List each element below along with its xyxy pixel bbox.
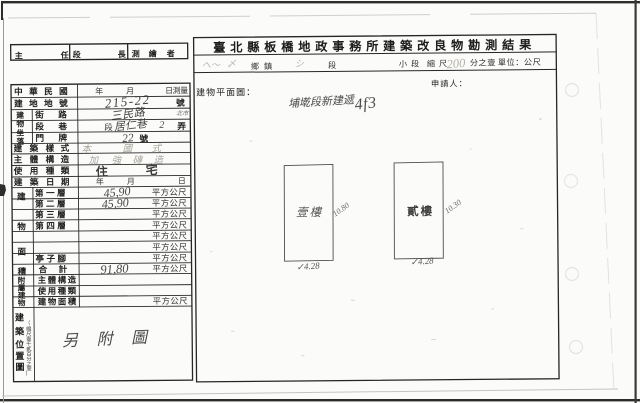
svg-text:第: 第 [35,198,44,209]
svg-text:段: 段 [104,122,113,132]
svg-text:牌: 牌 [58,132,67,143]
svg-text:使: 使 [37,286,47,296]
svg-text:號: 號 [176,97,185,108]
svg-text:✓4.28: ✓4.28 [296,260,321,272]
svg-text:號: 號 [59,97,68,108]
svg-text:種: 種 [46,165,55,176]
svg-text:樣: 樣 [45,142,54,153]
svg-text:段: 段 [35,121,44,132]
svg-text:圖: 圖 [15,362,24,372]
svg-text:體: 體 [30,153,39,164]
svg-text:層: 層 [57,187,66,198]
svg-text:日: 日 [46,177,55,187]
svg-text:主: 主 [15,50,23,60]
svg-text:建: 建 [15,110,24,120]
svg-text:置: 置 [15,351,24,361]
svg-text:築: 築 [14,326,25,337]
svg-text:二: 二 [46,199,55,209]
svg-text:物: 物 [17,221,26,232]
svg-text:者: 者 [166,48,175,58]
svg-text:民: 民 [44,86,53,96]
svg-text:號: 號 [139,132,148,143]
svg-text:式: 式 [60,142,69,153]
svg-text:第: 第 [35,187,44,198]
svg-text:任: 任 [60,50,69,60]
svg-text:宅: 宅 [145,162,158,177]
svg-text:造: 造 [68,275,77,285]
svg-text:面: 面 [58,297,67,307]
svg-text:種: 種 [58,286,67,296]
svg-text:年: 年 [96,176,104,186]
svg-text:國: 國 [123,144,134,155]
svg-text:平方公尺: 平方公尺 [152,242,187,252]
svg-text:國: 國 [59,86,68,96]
svg-text:2: 2 [159,120,164,131]
svg-text:合: 合 [39,263,48,274]
svg-text:段: 段 [73,49,81,59]
svg-text:體: 體 [48,275,57,285]
svg-text:建: 建 [37,297,47,307]
svg-text:平方公尺: 平方公尺 [152,198,187,208]
svg-text:期: 期 [61,176,70,187]
svg-text:計: 計 [59,263,68,274]
svg-text:構: 構 [46,153,55,164]
svg-text:建: 建 [12,142,22,153]
svg-text:平方公尺: 平方公尺 [153,296,188,306]
svg-text:面: 面 [17,247,26,257]
svg-text:平方公尺: 平方公尺 [152,209,187,219]
svg-text:造: 造 [61,153,70,164]
svg-text:層: 層 [57,220,66,231]
svg-text:）: ） [25,370,30,377]
svg-text:第: 第 [35,209,44,220]
svg-text:年: 年 [95,86,103,96]
svg-text:築: 築 [29,176,39,187]
svg-text:亭: 亭 [35,253,44,264]
svg-text:積: 積 [17,266,27,277]
svg-text:平方公尺: 平方公尺 [152,187,187,197]
svg-text:磚: 磚 [133,155,144,166]
svg-text:繪: 繪 [149,48,158,58]
svg-text:建物平面圖：: 建物平面圖： [196,86,256,98]
svg-text:物: 物 [48,297,57,307]
svg-text:（: （ [25,320,30,327]
svg-text:積: 積 [67,296,77,306]
svg-text:分之壹: 分之壹 [470,57,496,67]
svg-text:小段: 小段 [399,58,423,68]
svg-text:平方公尺: 平方公尺 [152,220,187,230]
svg-text:構: 構 [58,275,67,285]
svg-text:平方公尺: 平方公尺 [152,253,187,263]
svg-text:4f3: 4f3 [354,94,378,113]
svg-text:シ: シ [295,59,305,69]
svg-text:第: 第 [35,220,44,231]
svg-text:へ〜: へ〜 [202,60,221,70]
svg-text:單位：公尺: 單位：公尺 [498,57,542,67]
svg-text:中: 中 [14,86,23,97]
svg-text:建: 建 [15,312,25,323]
svg-text:強: 強 [112,155,123,166]
svg-text:地: 地 [44,97,53,108]
svg-text:申請人：: 申請人： [431,78,468,88]
svg-text:華: 華 [29,85,38,96]
svg-text:建: 建 [16,191,26,202]
svg-text:子: 子 [46,254,55,264]
svg-text:用: 用 [29,166,39,176]
svg-text:平方公尺: 平方公尺 [152,263,187,273]
svg-text:貳樓: 貳樓 [407,204,434,218]
svg-text:物: 物 [16,119,24,129]
svg-text:一: 一 [46,188,55,198]
svg-text:層: 層 [57,198,66,209]
svg-text:門: 門 [35,133,44,143]
svg-text:使: 使 [13,165,23,176]
svg-text:日測量: 日測量 [165,85,188,95]
svg-text:物: 物 [18,298,26,308]
svg-text:主: 主 [38,275,47,285]
svg-text:建: 建 [13,176,23,187]
svg-text:路: 路 [58,109,67,120]
svg-text:地: 地 [29,97,38,108]
svg-text:三: 三 [46,210,55,220]
svg-text:弄: 弄 [176,121,186,131]
svg-text:200: 200 [446,56,467,71]
svg-text:主: 主 [14,154,23,165]
svg-text:平方公尺: 平方公尺 [152,230,187,240]
svg-text:類: 類 [60,165,70,176]
svg-text:〆: 〆 [227,59,237,69]
svg-text:層: 層 [57,208,66,219]
svg-text:段: 段 [315,60,341,70]
svg-text:式: 式 [152,143,163,154]
svg-text:鄉鎮: 鄉鎮 [251,61,277,71]
svg-text:築: 築 [28,142,38,153]
svg-text:✓4.28: ✓4.28 [410,255,435,267]
svg-text:腳: 腳 [57,253,66,264]
svg-text:巷: 巷 [57,120,67,131]
svg-text:用: 用 [47,286,56,296]
svg-text:街: 街 [34,109,44,120]
svg-text:四: 四 [46,221,55,231]
svg-text:壹樓: 壹樓 [296,206,323,219]
svg-text:45,90: 45,90 [101,195,129,211]
svg-text:日: 日 [178,177,186,186]
svg-text:類: 類 [67,286,77,296]
svg-text:本: 本 [82,144,93,155]
svg-text:位: 位 [15,339,24,350]
svg-text:建: 建 [13,98,23,109]
svg-text:臺北縣板橋地政事務所建築改良物勘測結果: 臺北縣板橋地政事務所建築改良物勘測結果 [213,37,536,55]
svg-text:長: 長 [118,50,127,59]
svg-text:北市: 北市 [176,109,189,117]
svg-text:91,80: 91,80 [100,261,130,277]
svg-text:測: 測 [132,49,140,59]
